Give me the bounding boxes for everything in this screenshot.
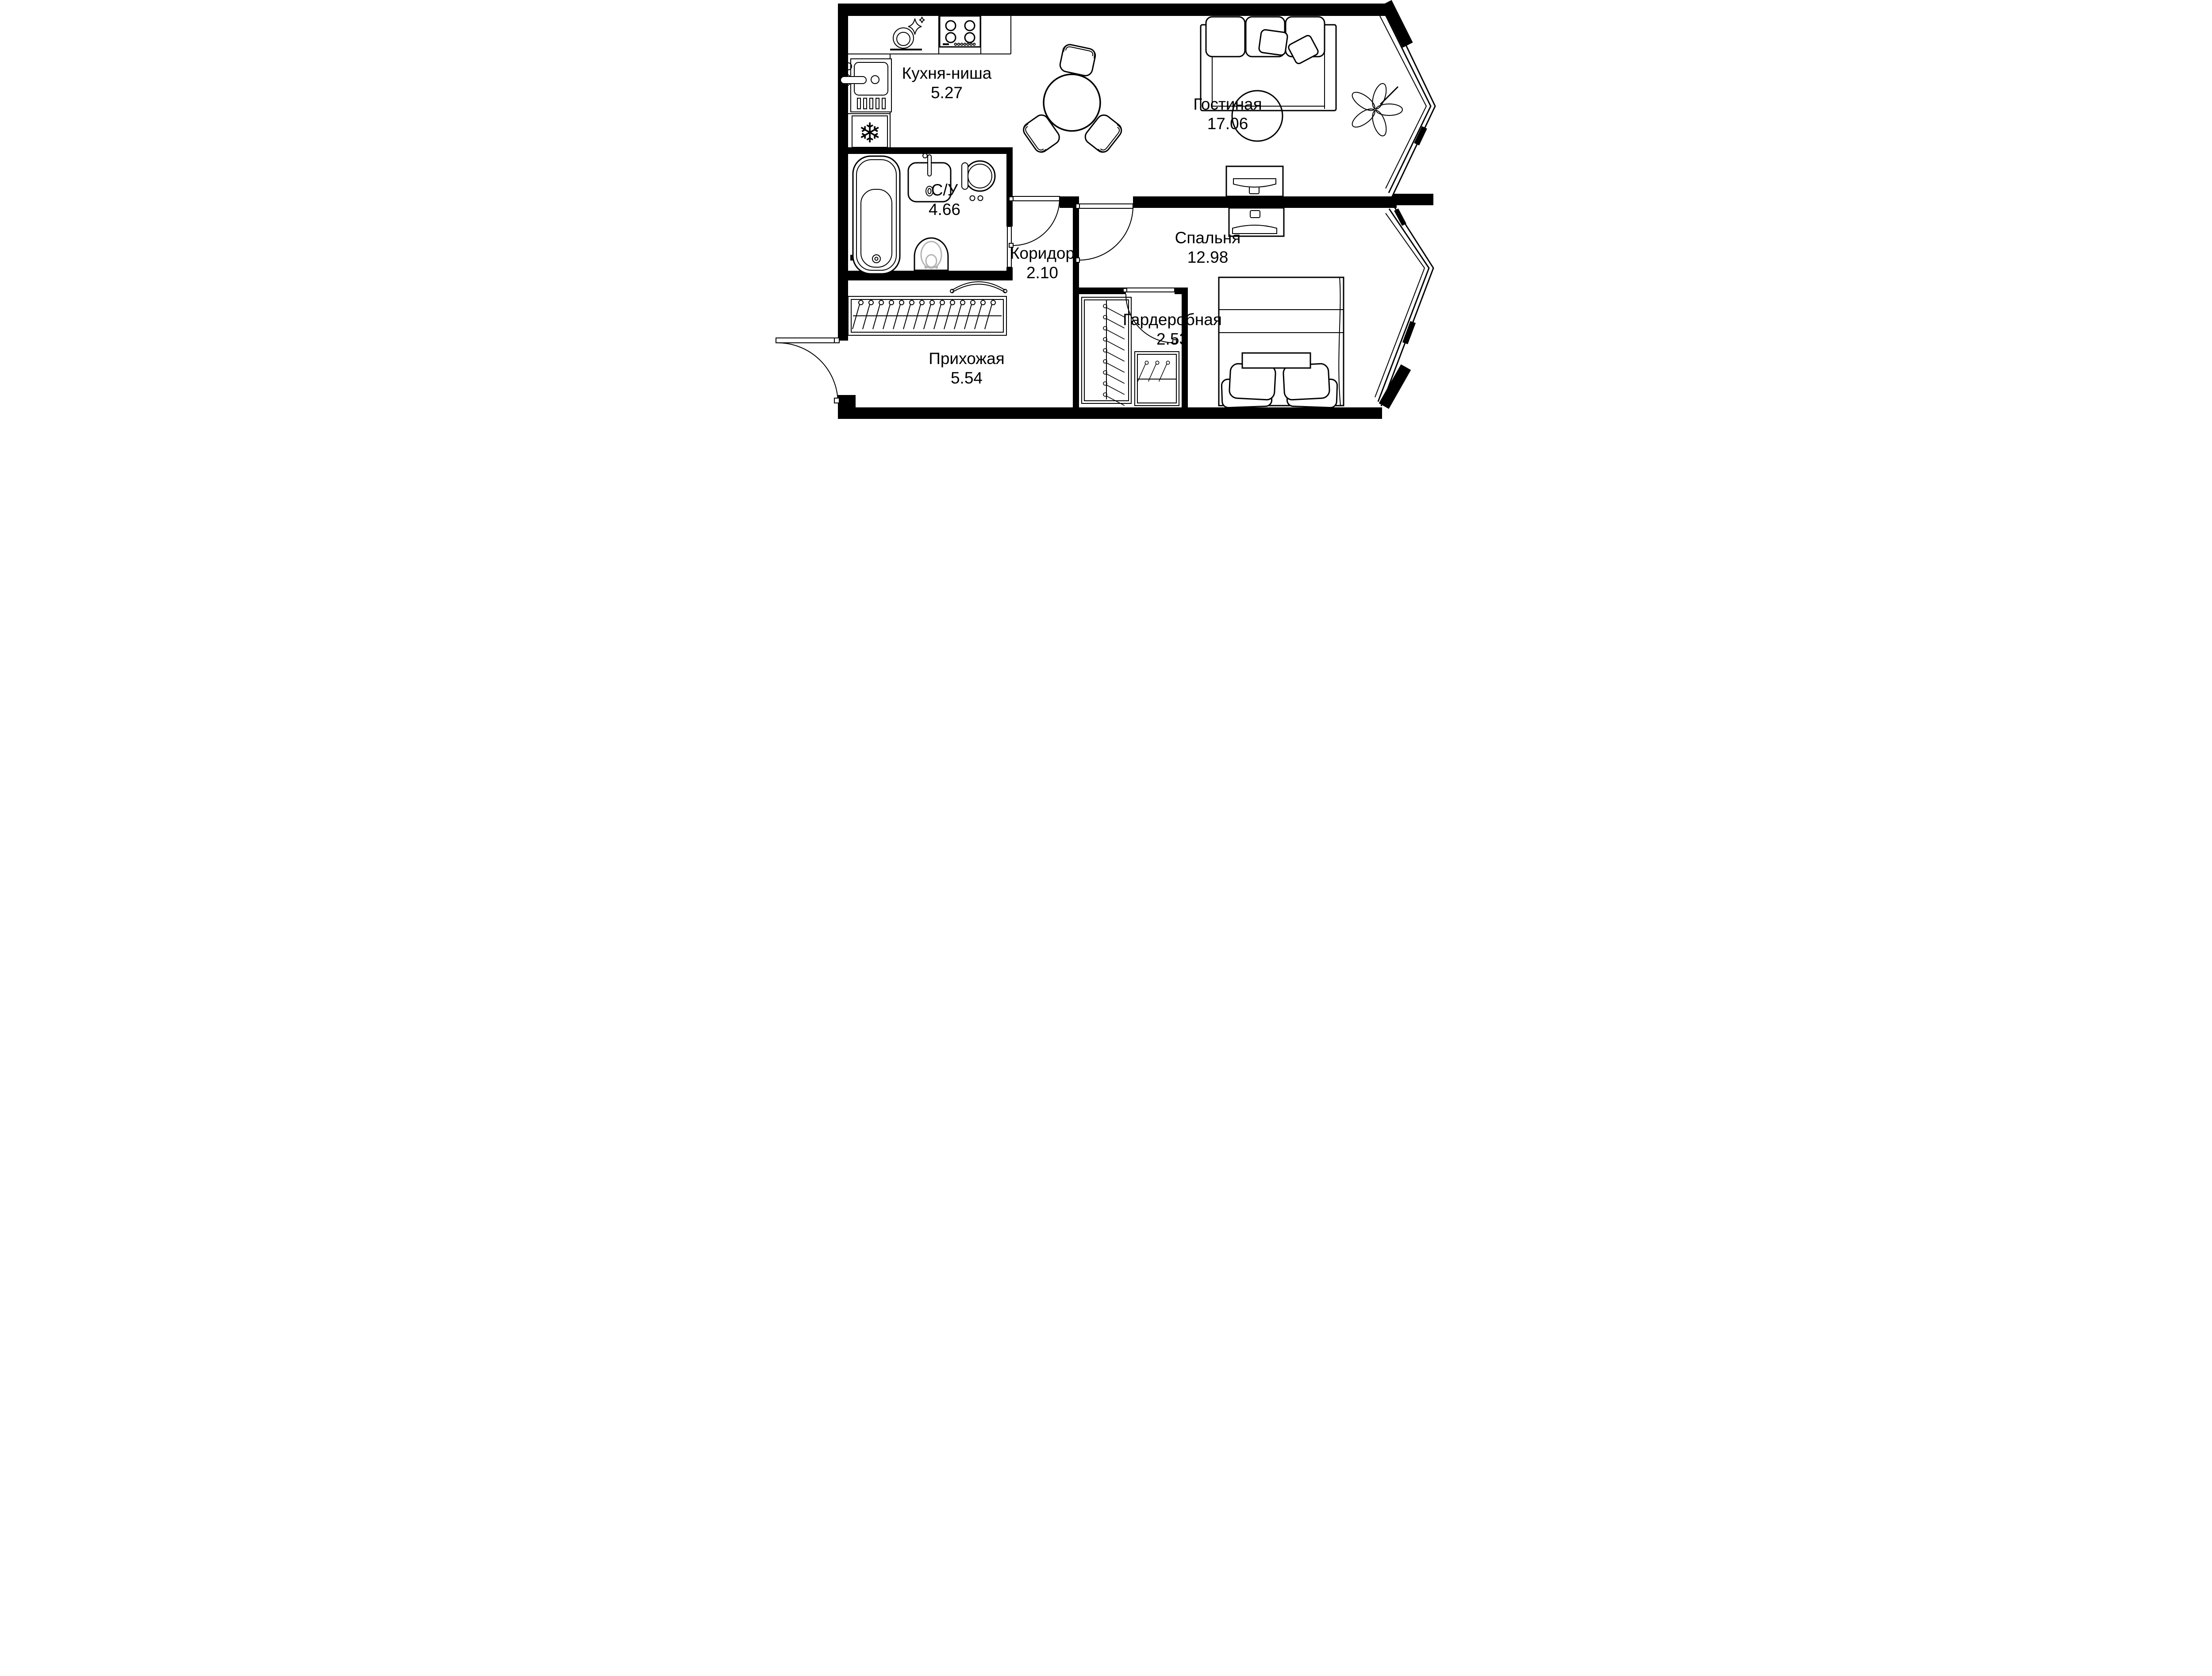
snowflake-glyph: ❄ <box>858 117 881 149</box>
room-area: 17.06 <box>1207 115 1248 133</box>
wall-corridor-bedroom <box>1073 208 1079 407</box>
room-name: Коридор <box>1010 244 1075 262</box>
double-bed-icon <box>1219 277 1344 408</box>
room-name: С/У <box>931 181 958 199</box>
wall-left <box>838 4 848 341</box>
dining-table-icon <box>1044 74 1100 131</box>
room-name: Прихожая <box>929 349 1004 368</box>
room-area: 2.53 <box>1156 330 1188 348</box>
sofa-cushion <box>1206 17 1245 57</box>
room-name: Кухня-ниша <box>902 64 992 82</box>
bed-headboard <box>1242 353 1310 368</box>
room-name: Гардеробная <box>1123 311 1222 329</box>
room-area: 2.10 <box>1026 264 1058 282</box>
wall-living-bedroom <box>1133 196 1397 208</box>
fridge-snowflake-icon: ❄ <box>852 116 887 149</box>
pillow-icon <box>1229 363 1276 400</box>
room-area: 5.54 <box>951 369 983 387</box>
room-area: 4.66 <box>929 200 960 219</box>
room-area: 5.27 <box>931 84 963 102</box>
wall-bottom <box>838 407 1382 419</box>
pillow-icon <box>1283 363 1330 400</box>
floor-plan: ❄ <box>774 0 1438 419</box>
throw-pillow-icon <box>1259 29 1288 56</box>
door-leaf <box>1013 196 1060 201</box>
floor-plan-drawing: ❄ <box>774 0 1438 419</box>
door-leaf <box>776 338 838 343</box>
stove-burners-icon <box>940 16 980 47</box>
toilet-icon <box>914 238 948 270</box>
tv-console-icon <box>1226 166 1283 196</box>
bathtub-icon <box>850 156 900 274</box>
room-name: Спальня <box>1175 229 1241 247</box>
wall-top <box>838 4 1386 16</box>
wall-bay-fin <box>1393 194 1433 205</box>
wall-bathroom-right-mid <box>1006 200 1013 226</box>
chair-icon <box>1059 43 1096 77</box>
wall-wardrobe-top-left <box>1079 288 1126 294</box>
wall-bathroom-right-upper <box>1006 154 1013 200</box>
room-area: 12.98 <box>1187 248 1229 266</box>
room-name: Гостиная <box>1193 95 1262 113</box>
door-leaf <box>1126 288 1175 292</box>
door-leaf <box>1079 204 1133 208</box>
